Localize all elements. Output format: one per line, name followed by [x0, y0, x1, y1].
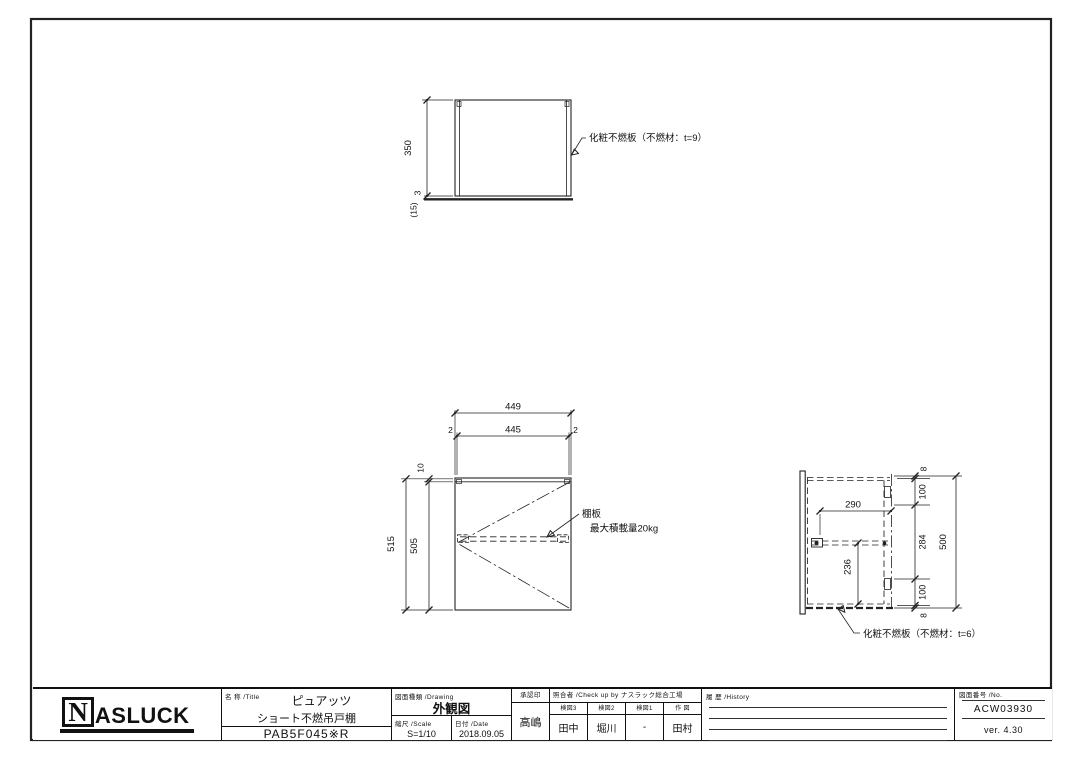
- drawing-number-label: 図面番号 /No.: [955, 689, 1052, 700]
- product-series: ピュアッツ: [252, 692, 391, 709]
- plan-cabinet-outline: [455, 100, 571, 196]
- product-name: ショート不燃吊戸棚: [222, 710, 391, 726]
- check-col-1-label: 検図1: [626, 703, 663, 715]
- approval-label: 承認印: [512, 689, 549, 703]
- front-view: 449 445 2 2 10 505 515 棚板 最大積載量20kg: [386, 402, 658, 614]
- plan-dim-gap: 3: [413, 190, 423, 195]
- date-value: 2018.09.05: [452, 729, 511, 739]
- version: ver. 4.30: [955, 719, 1052, 740]
- side-dim-bottom-thickness: 8: [919, 613, 929, 618]
- front-dim-outer-width: 449: [505, 402, 521, 413]
- front-cabinet-outline: [455, 478, 571, 610]
- history-row: [709, 708, 947, 719]
- check-col-2-label: 検図2: [588, 703, 625, 715]
- front-shelf-load: 最大積載量20kg: [590, 523, 658, 535]
- plan-dim-door: (15): [409, 202, 419, 217]
- check-col-2: 検図2 堀川: [588, 703, 626, 740]
- history-label: 履 歴 /History: [706, 691, 749, 701]
- history-row: [709, 730, 947, 741]
- plan-panel-note: 化粧不燃板（不燃材：t=9）: [589, 132, 707, 144]
- approver-name: 高嶋: [512, 703, 549, 740]
- side-dim-bottom-gap: 100: [918, 585, 928, 600]
- title-block: N ASLUCK 名 称 /Title ピュアッツ ショート不燃吊戸棚 PAB5…: [33, 687, 1052, 740]
- side-dim-total: 500: [938, 534, 949, 550]
- drawn-by-name: 田村: [664, 715, 701, 740]
- checkup-cell: 照合者 /Check up by ナスラック総合工場 検図3 田中 検図2 堀川…: [550, 689, 702, 740]
- logo-cell: N ASLUCK: [33, 689, 222, 740]
- model-number: PAB5F045※R: [222, 727, 391, 741]
- side-dim-lower-height: 236: [843, 559, 854, 575]
- check-col-2-name: 堀川: [588, 715, 625, 740]
- check-col-3-name: 田中: [550, 715, 587, 740]
- logo-wordmark: ASLUCK: [95, 705, 190, 727]
- hinge-mark-bottom: [885, 579, 891, 590]
- date-cell: 日付 /Date 2018.09.05: [452, 716, 511, 740]
- front-dim-top: 10: [416, 463, 426, 473]
- name-cell: 名 称 /Title ピュアッツ ショート不燃吊戸棚 PAB5F045※R: [222, 689, 392, 740]
- front-dim-edge-left: 2: [448, 425, 453, 435]
- nasluck-logo: N ASLUCK: [60, 696, 193, 733]
- door-swing-line-top: [457, 483, 569, 544]
- side-view: 290 236 8 100 284 100 8 500 化粧不燃板（不燃材：t=…: [800, 466, 981, 640]
- check-col-3: 検図3 田中: [550, 703, 588, 740]
- front-shelf-name: 棚板: [582, 508, 602, 520]
- scale-cell: 縮尺 /Scale S=1/10: [392, 716, 452, 740]
- front-dim-inner-width: 445: [505, 425, 521, 436]
- side-dim-shelf-width: 290: [845, 500, 861, 511]
- front-dim-edge-right: 2: [573, 425, 578, 435]
- history-cell: 履 歴 /History: [702, 689, 955, 740]
- check-col-1-name: -: [626, 715, 663, 740]
- scale-value: S=1/10: [392, 729, 451, 739]
- drawing-number: ACW03930: [955, 701, 1052, 718]
- plan-dim-height: 350: [403, 140, 414, 156]
- side-dim-mid: 284: [918, 534, 928, 549]
- drawing-number-cell: 図面番号 /No. ACW03930 ver. 4.30: [955, 689, 1052, 740]
- drawn-by-label: 作 図: [664, 703, 701, 715]
- side-dim-top-gap: 100: [918, 484, 928, 499]
- plan-view: 350 3 (15) 化粧不燃板（不燃材：t=9）: [403, 97, 707, 218]
- drawn-by-col: 作 図 田村: [664, 703, 701, 740]
- drawing-type-label: 図面種類 /Drawing: [395, 691, 454, 701]
- drawing-cell: 図面種類 /Drawing 外観図 縮尺 /Scale S=1/10 日付 /D…: [392, 689, 512, 740]
- history-row: [709, 719, 947, 730]
- logo-letter-n: N: [62, 697, 94, 727]
- name-label: 名 称 /Title: [225, 691, 259, 701]
- check-col-3-label: 検図3: [550, 703, 587, 715]
- hinge-mark-top: [885, 487, 891, 498]
- front-dim-inner-height: 505: [409, 538, 420, 554]
- door-swing-line-bottom: [457, 543, 569, 608]
- side-dim-top-thickness: 8: [919, 466, 929, 471]
- cad-drawing-canvas: 350 3 (15) 化粧不燃板（不燃材：t=9） 449: [0, 0, 1080, 764]
- front-dim-outer-height: 515: [386, 536, 397, 552]
- checkup-label: 照合者 /Check up by ナスラック総合工場: [550, 689, 701, 703]
- check-col-1: 検図1 -: [626, 703, 664, 740]
- approval-cell: 承認印 高嶋: [512, 689, 550, 740]
- side-panel-note: 化粧不燃板（不燃材：t=6）: [863, 628, 981, 640]
- date-label: 日付 /Date: [455, 718, 489, 728]
- scale-label: 縮尺 /Scale: [395, 718, 431, 728]
- side-door-panel: [800, 471, 805, 614]
